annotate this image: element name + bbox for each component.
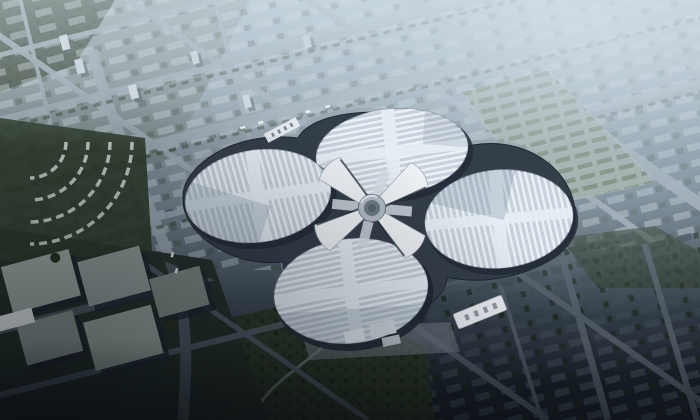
vignette-bottom bbox=[0, 340, 700, 420]
screenshot-canvas bbox=[0, 0, 700, 420]
aerial-city-rendering bbox=[0, 0, 700, 420]
